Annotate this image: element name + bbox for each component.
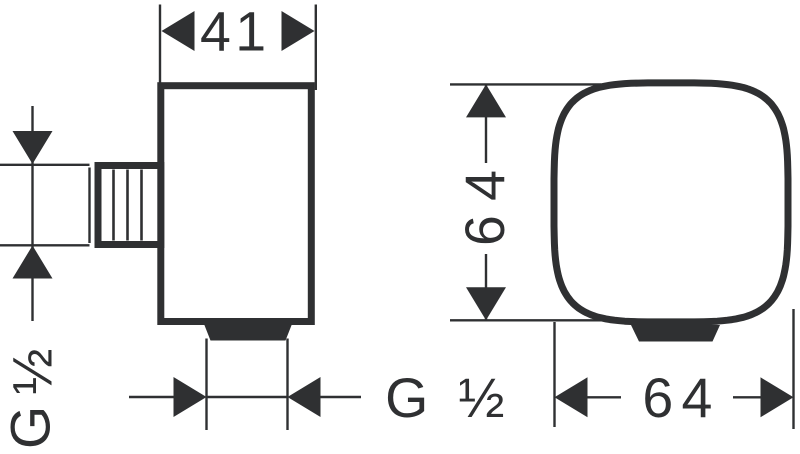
svg-text:4: 4: [200, 0, 231, 62]
svg-text:1: 1: [235, 0, 266, 62]
svg-text:G: G: [385, 367, 428, 429]
svg-text:4: 4: [682, 367, 713, 429]
svg-text:6: 6: [642, 367, 673, 429]
svg-text:4: 4: [454, 170, 516, 201]
svg-text:G: G: [0, 406, 62, 449]
svg-text:6: 6: [454, 215, 516, 246]
svg-text:½: ½: [458, 367, 504, 429]
svg-text:½: ½: [2, 349, 64, 395]
